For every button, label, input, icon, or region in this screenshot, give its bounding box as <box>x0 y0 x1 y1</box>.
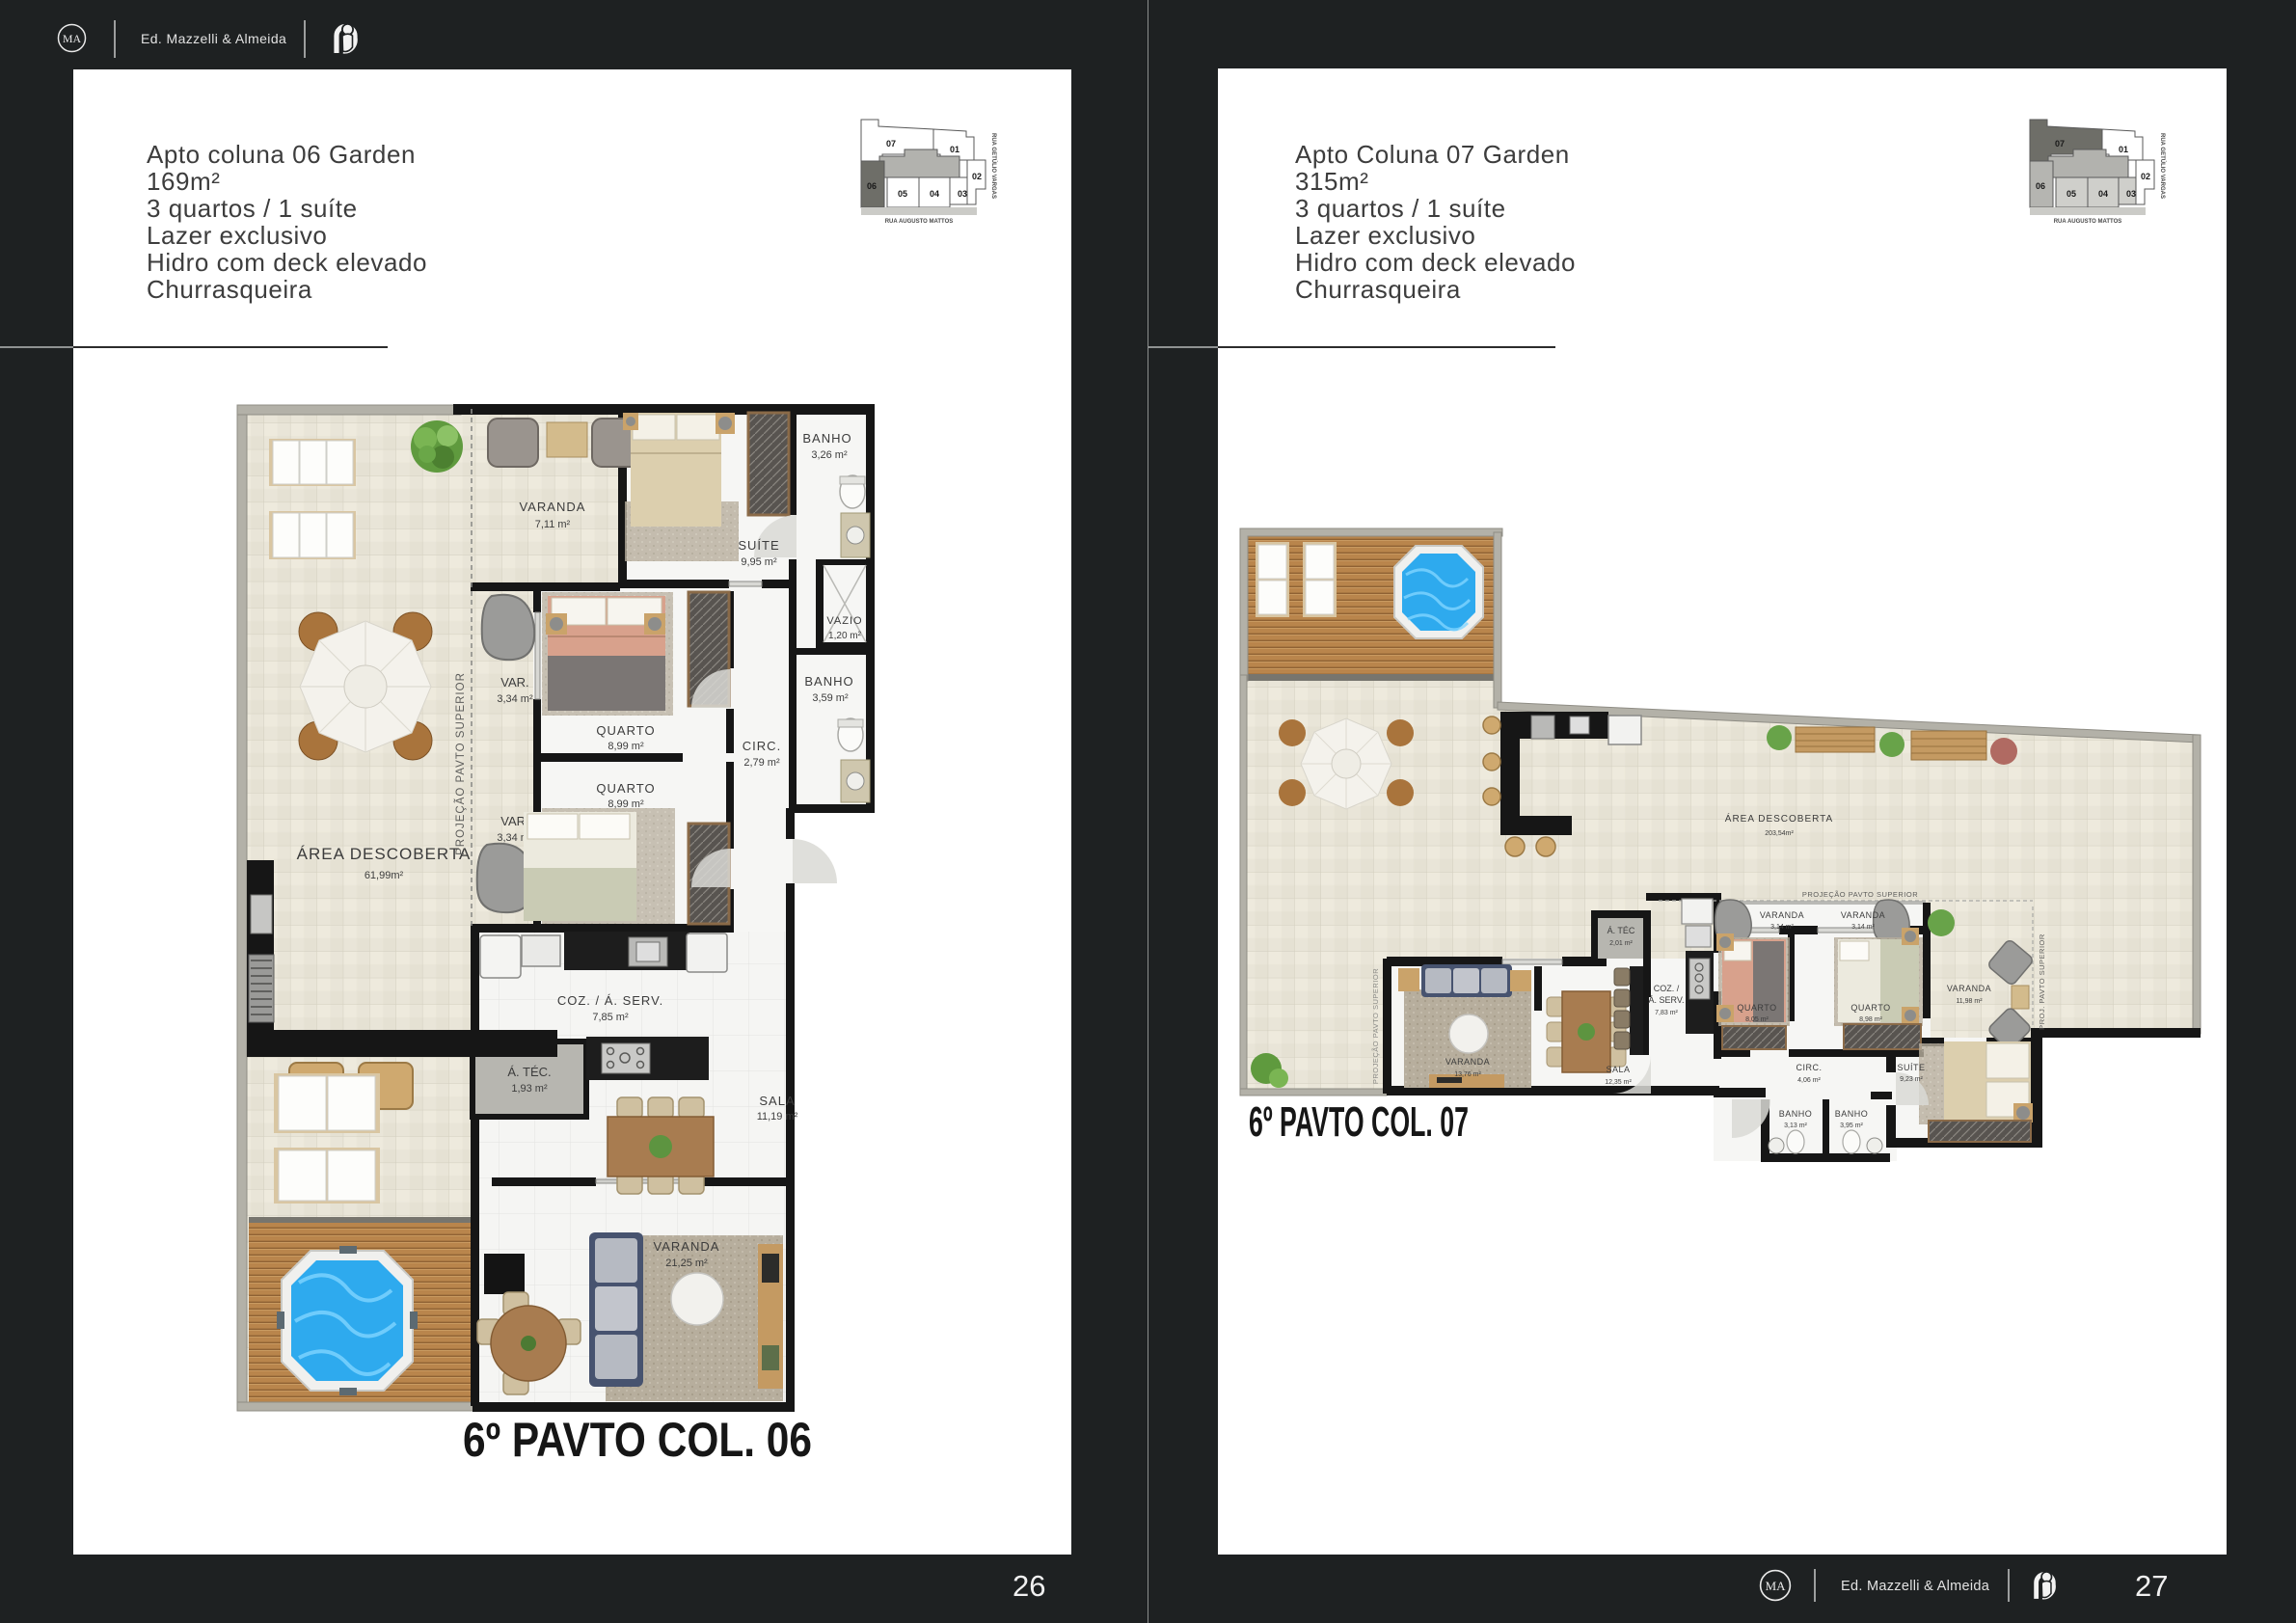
svg-text:9,95 m²: 9,95 m² <box>741 556 777 568</box>
svg-text:4,06 m²: 4,06 m² <box>1797 1077 1821 1084</box>
svg-text:2,01 m²: 2,01 m² <box>1609 940 1633 947</box>
svg-text:MA: MA <box>63 32 81 45</box>
svg-text:12,35 m²: 12,35 m² <box>1605 1079 1632 1086</box>
svg-text:BANHO: BANHO <box>1779 1109 1813 1119</box>
svg-text:BANHO: BANHO <box>1835 1109 1869 1119</box>
svg-text:SALA: SALA <box>1606 1065 1630 1074</box>
svg-text:203,54m²: 203,54m² <box>1765 830 1794 837</box>
svg-text:QUARTO: QUARTO <box>596 781 655 796</box>
svg-text:13,76 m²: 13,76 m² <box>1454 1071 1481 1078</box>
svg-text:01: 01 <box>950 145 959 154</box>
svg-text:PROJEÇÃO PAVTO SUPERIOR: PROJEÇÃO PAVTO SUPERIOR <box>1371 968 1380 1084</box>
svg-text:3,95 m²: 3,95 m² <box>1840 1123 1863 1129</box>
svg-text:QUARTO: QUARTO <box>596 723 655 738</box>
svg-text:3,14 m²: 3,14 m² <box>1770 924 1794 931</box>
svg-text:BANHO: BANHO <box>804 674 853 689</box>
svg-text:06: 06 <box>867 181 877 191</box>
svg-text:7,11 m²: 7,11 m² <box>535 519 571 530</box>
svg-text:8,99 m²: 8,99 m² <box>608 741 644 752</box>
svg-text:02: 02 <box>2141 172 2150 181</box>
svg-text:07: 07 <box>2055 139 2065 149</box>
svg-text:VAZIO: VAZIO <box>826 615 862 627</box>
svg-text:VARANDA: VARANDA <box>1760 910 1804 920</box>
svg-text:Á. TÉC: Á. TÉC <box>1607 926 1635 935</box>
svg-text:6º PAVTO COL. 07: 6º PAVTO COL. 07 <box>1249 1098 1469 1146</box>
svg-text:ÁREA DESCOBERTA: ÁREA DESCOBERTA <box>297 845 472 863</box>
svg-text:PROJEÇÃO PAVTO SUPERIOR: PROJEÇÃO PAVTO SUPERIOR <box>454 672 467 855</box>
svg-text:07: 07 <box>886 139 896 149</box>
svg-text:1,93 m²: 1,93 m² <box>511 1083 548 1095</box>
svg-text:3,59 m²: 3,59 m² <box>812 692 849 704</box>
svg-text:VARANDA: VARANDA <box>654 1239 720 1254</box>
svg-text:SUÍTE: SUÍTE <box>738 538 779 553</box>
svg-text:2,79 m²: 2,79 m² <box>743 757 780 769</box>
svg-text:3,34 m²: 3,34 m² <box>497 693 533 705</box>
svg-text:11,98 m²: 11,98 m² <box>1956 998 1983 1005</box>
svg-text:04: 04 <box>2098 189 2108 199</box>
svg-text:7,85 m²: 7,85 m² <box>592 1012 629 1023</box>
svg-text:VARANDA: VARANDA <box>1947 984 1991 993</box>
svg-text:RUA GETÚLIO VARGAS: RUA GETÚLIO VARGAS <box>2159 133 2166 199</box>
svg-text:1,20 m²: 1,20 m² <box>828 631 862 641</box>
svg-text:6º PAVTO COL. 06: 6º PAVTO COL. 06 <box>463 1413 812 1467</box>
svg-text:04: 04 <box>930 189 939 199</box>
svg-text:3,13 m²: 3,13 m² <box>1784 1123 1807 1129</box>
svg-text:CIRC.: CIRC. <box>743 739 781 753</box>
svg-text:VARANDA: VARANDA <box>1841 910 1885 920</box>
svg-text:SALA: SALA <box>759 1094 795 1108</box>
svg-text:RUA GETÚLIO VARGAS: RUA GETÚLIO VARGAS <box>990 133 997 199</box>
svg-text:05: 05 <box>898 189 907 199</box>
svg-text:QUARTO: QUARTO <box>1850 1003 1890 1013</box>
svg-text:VARANDA: VARANDA <box>520 500 586 514</box>
svg-text:8,98 m²: 8,98 m² <box>1859 1016 1882 1023</box>
svg-text:3,26 m²: 3,26 m² <box>811 449 848 461</box>
svg-text:QUARTO: QUARTO <box>1737 1003 1776 1013</box>
svg-text:Á. SERV.: Á. SERV. <box>1648 995 1684 1005</box>
svg-text:21,25 m²: 21,25 m² <box>665 1258 708 1269</box>
svg-text:VAR.: VAR. <box>500 675 528 690</box>
svg-text:PROJ. PAVTO SUPERIOR: PROJ. PAVTO SUPERIOR <box>2038 933 2046 1030</box>
svg-text:7,83 m²: 7,83 m² <box>1655 1010 1678 1016</box>
svg-text:11,19 m²: 11,19 m² <box>757 1111 798 1123</box>
svg-text:8,05 m²: 8,05 m² <box>1745 1016 1769 1023</box>
svg-text:02: 02 <box>972 172 982 181</box>
svg-text:VARANDA: VARANDA <box>1445 1057 1490 1067</box>
svg-text:9,23 m²: 9,23 m² <box>1900 1076 1923 1083</box>
svg-text:RUA AUGUSTO MATTOS: RUA AUGUSTO MATTOS <box>2054 219 2122 225</box>
svg-text:06: 06 <box>2036 181 2045 191</box>
svg-text:Á. TÉC.: Á. TÉC. <box>507 1065 551 1079</box>
svg-text:01: 01 <box>2119 145 2128 154</box>
svg-text:MA: MA <box>1766 1579 1787 1593</box>
svg-text:COZ. /: COZ. / <box>1654 984 1680 993</box>
svg-text:61,99m²: 61,99m² <box>365 870 404 881</box>
svg-text:3,14 m²: 3,14 m² <box>1851 924 1875 931</box>
svg-text:03: 03 <box>2126 189 2136 199</box>
svg-text:03: 03 <box>958 189 967 199</box>
svg-text:SUÍTE: SUÍTE <box>1897 1063 1925 1072</box>
svg-text:RUA AUGUSTO MATTOS: RUA AUGUSTO MATTOS <box>885 219 954 225</box>
svg-text:COZ. / Á. SERV.: COZ. / Á. SERV. <box>557 993 663 1008</box>
svg-text:PROJEÇÃO PAVTO SUPERIOR: PROJEÇÃO PAVTO SUPERIOR <box>1802 890 1918 899</box>
svg-text:ÁREA DESCOBERTA: ÁREA DESCOBERTA <box>1725 812 1833 825</box>
svg-text:05: 05 <box>2066 189 2076 199</box>
svg-text:CIRC.: CIRC. <box>1796 1063 1823 1072</box>
svg-text:BANHO: BANHO <box>802 431 851 446</box>
